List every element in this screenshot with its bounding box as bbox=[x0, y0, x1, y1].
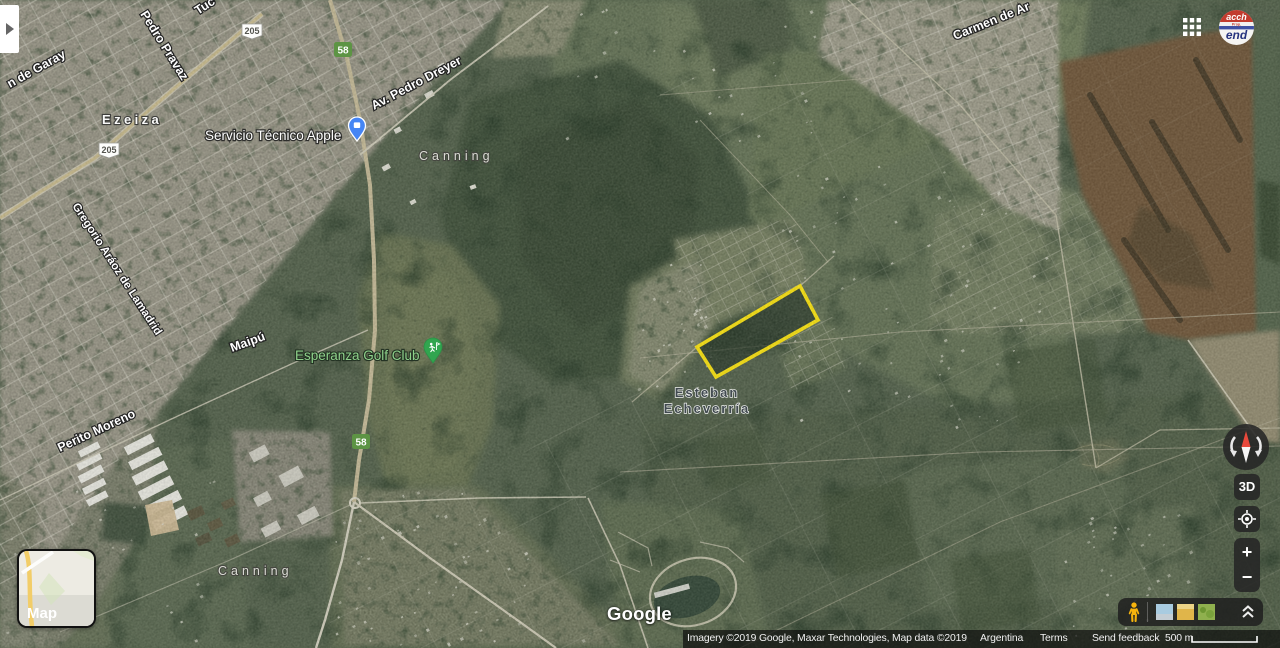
svg-text:Esteban: Esteban bbox=[675, 385, 740, 400]
svg-text:Servicio Técnico Apple: Servicio Técnico Apple bbox=[205, 128, 341, 143]
svg-text:acch: acch bbox=[1226, 12, 1247, 22]
svg-text:Prop.: Prop. bbox=[1232, 23, 1241, 27]
svg-text:Echeverría: Echeverría bbox=[664, 401, 751, 416]
svg-text:205: 205 bbox=[244, 26, 259, 36]
svg-text:Esperanza Golf Club: Esperanza Golf Club bbox=[295, 348, 420, 363]
svg-text:Map: Map bbox=[27, 605, 57, 622]
svg-text:Canning: Canning bbox=[419, 149, 494, 163]
svg-text:end: end bbox=[1226, 28, 1248, 42]
svg-text:58: 58 bbox=[355, 438, 367, 449]
svg-text:58: 58 bbox=[337, 46, 349, 57]
svg-text:Ezeiza: Ezeiza bbox=[102, 112, 162, 127]
svg-text:205: 205 bbox=[101, 145, 116, 155]
svg-text:Canning: Canning bbox=[218, 564, 293, 578]
